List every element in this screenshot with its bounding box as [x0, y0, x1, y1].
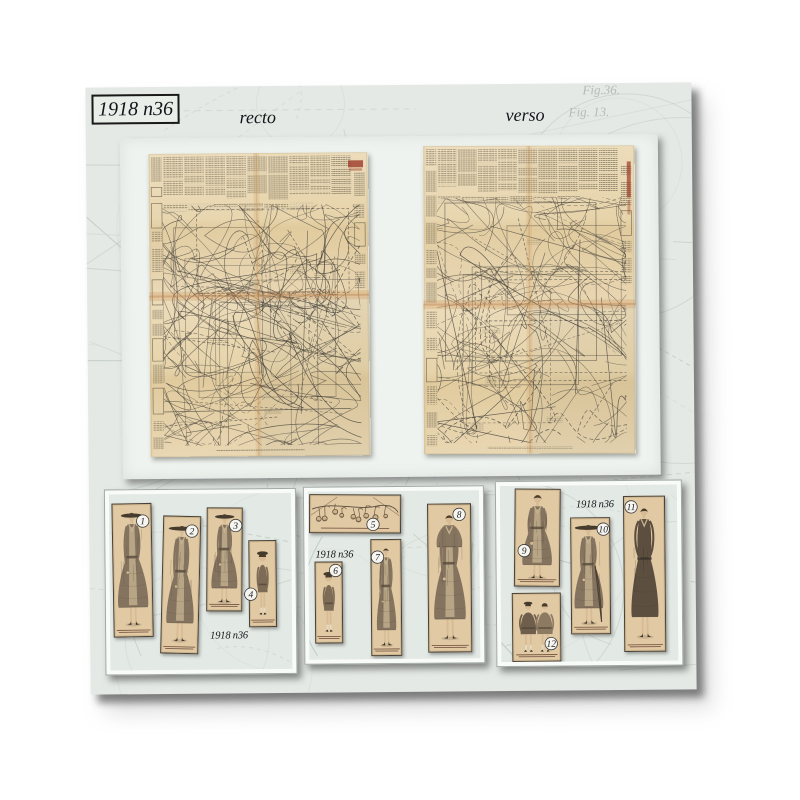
svg-text:1: 1 — [140, 517, 145, 527]
svg-text:6: 6 — [333, 567, 338, 577]
svg-text:12: 12 — [546, 640, 556, 650]
svg-text:3: 3 — [232, 522, 238, 532]
svg-text:5: 5 — [371, 521, 376, 531]
svg-text:8: 8 — [457, 511, 462, 521]
svg-text:4: 4 — [248, 590, 253, 600]
svg-text:2: 2 — [189, 527, 194, 537]
svg-text:11: 11 — [627, 503, 636, 513]
svg-text:9: 9 — [522, 547, 527, 557]
svg-text:Fig. 13.: Fig. 13. — [568, 104, 610, 119]
svg-text:Fig.36.: Fig.36. — [581, 82, 620, 97]
svg-text:10: 10 — [598, 525, 608, 535]
